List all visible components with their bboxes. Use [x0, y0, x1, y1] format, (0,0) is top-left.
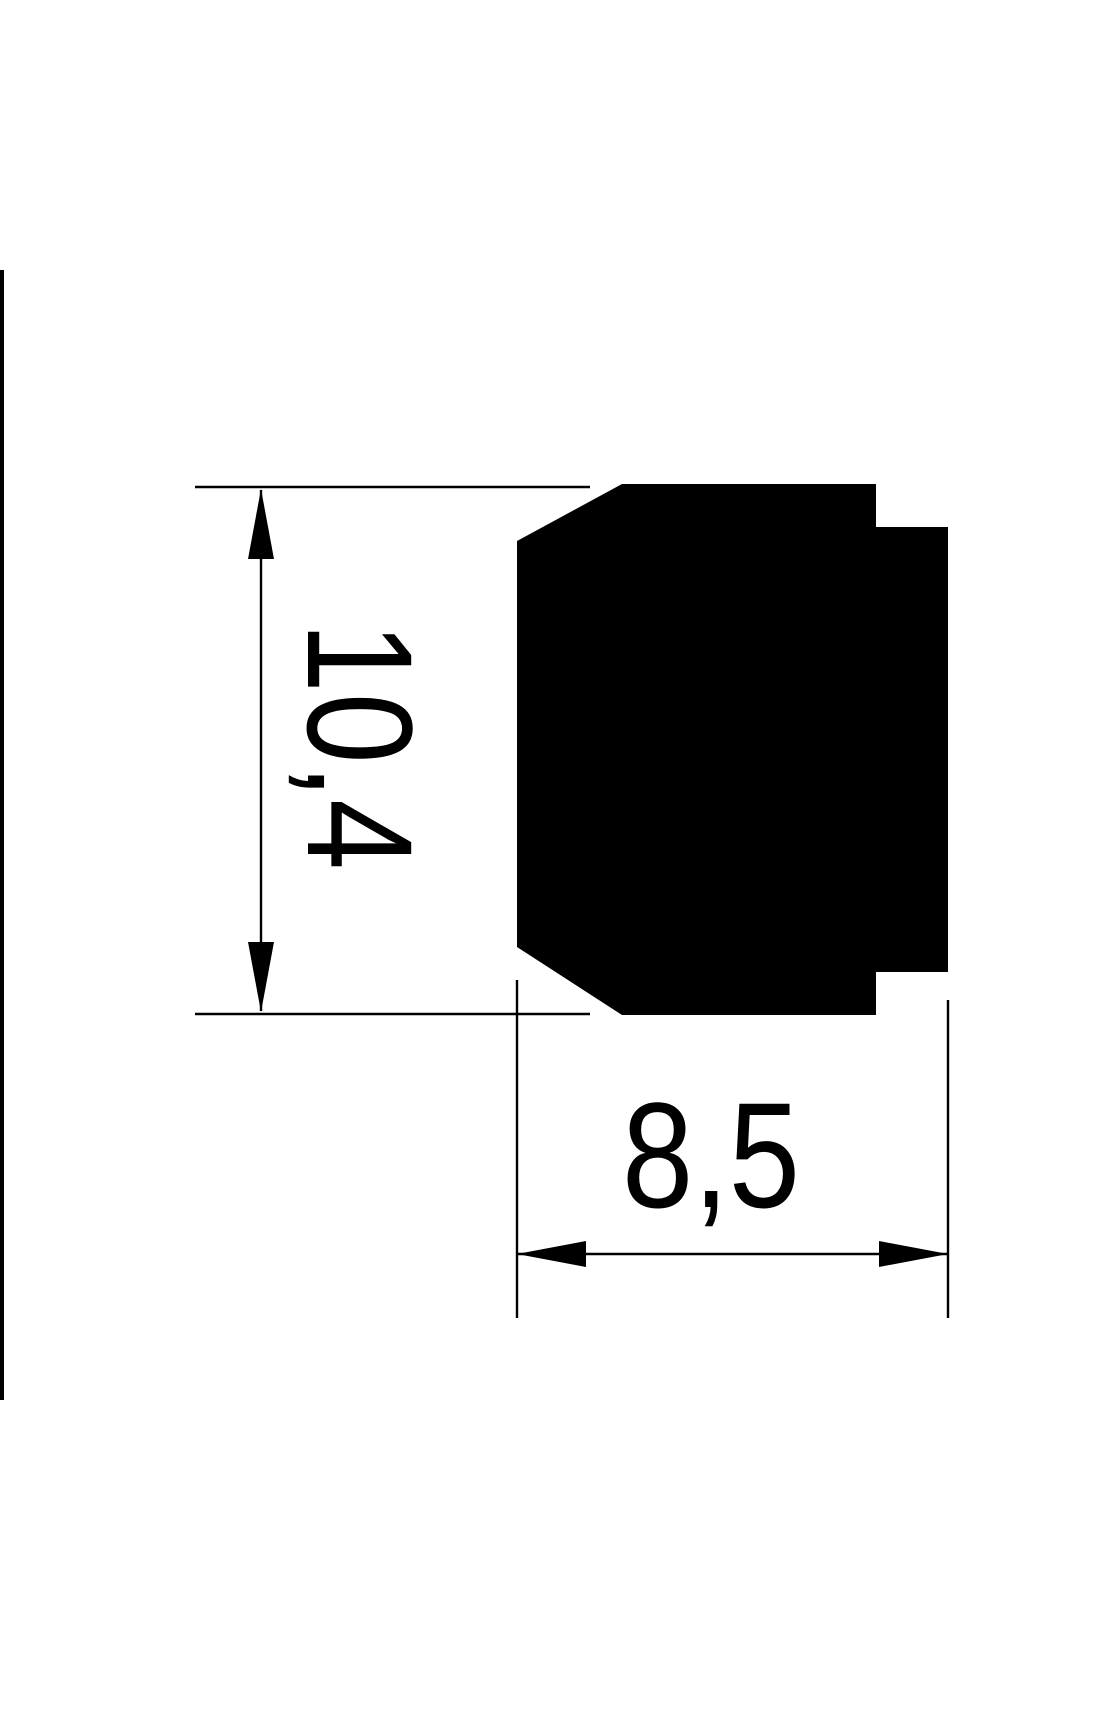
- arrow-down-icon: [248, 942, 274, 1012]
- vertical-dimension-label: 10,4: [276, 622, 444, 870]
- arrow-right-icon: [879, 1241, 948, 1267]
- profile-shape: [517, 484, 948, 1015]
- page-edge-bar: [0, 270, 4, 1400]
- arrow-left-icon: [517, 1241, 586, 1267]
- arrow-up-icon: [248, 489, 274, 559]
- technical-drawing: 10,4 8,5: [0, 0, 1115, 1723]
- drawing-page: 10,4 8,5: [0, 0, 1115, 1723]
- horizontal-dimension-label: 8,5: [622, 1071, 800, 1239]
